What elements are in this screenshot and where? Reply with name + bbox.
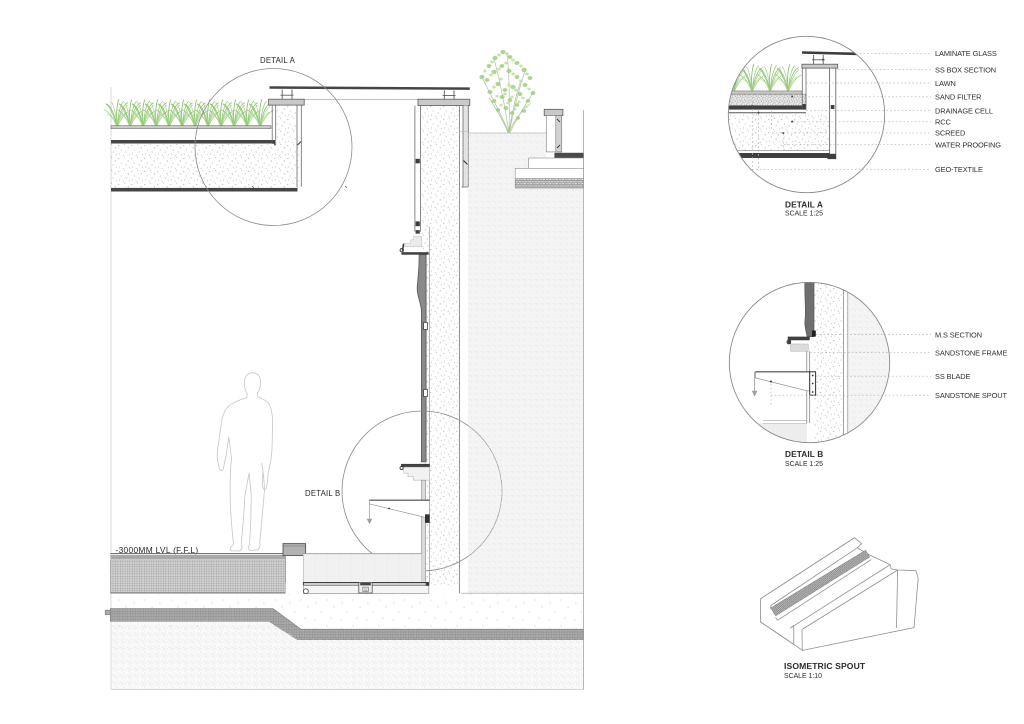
- svg-text:M.S SECTION: M.S SECTION: [935, 330, 982, 339]
- svg-text:SS BOX SECTION: SS BOX SECTION: [935, 65, 996, 74]
- svg-text:SCALE 1:25: SCALE 1:25: [785, 461, 823, 468]
- svg-text:DETAIL B: DETAIL B: [785, 449, 823, 459]
- svg-text:SCALE 1:10: SCALE 1:10: [784, 673, 822, 680]
- svg-text:WATER PROOFING: WATER PROOFING: [935, 140, 1001, 149]
- svg-text:SS BLADE: SS BLADE: [935, 372, 971, 381]
- svg-text:RCC: RCC: [935, 118, 951, 127]
- svg-text:SANDSTONE SPOUT: SANDSTONE SPOUT: [935, 391, 1007, 400]
- svg-text:SCALE 1:25: SCALE 1:25: [785, 211, 823, 218]
- svg-text:LAMINATE GLASS: LAMINATE GLASS: [935, 49, 997, 58]
- svg-text:LAWN: LAWN: [935, 79, 956, 88]
- svg-text:ISOMETRIC SPOUT: ISOMETRIC SPOUT: [784, 661, 866, 671]
- svg-text:DETAIL B: DETAIL B: [305, 489, 340, 498]
- svg-text:SCREED: SCREED: [935, 129, 965, 138]
- svg-text:DRAINAGE CELL: DRAINAGE CELL: [935, 106, 993, 115]
- svg-text:DETAIL A: DETAIL A: [260, 56, 296, 65]
- svg-text:GEO-TEXTILE: GEO-TEXTILE: [935, 165, 983, 174]
- svg-text:SANDSTONE FRAME: SANDSTONE FRAME: [935, 349, 1007, 358]
- svg-text:SAND FILTER: SAND FILTER: [935, 93, 981, 102]
- svg-text:DETAIL A: DETAIL A: [785, 200, 823, 210]
